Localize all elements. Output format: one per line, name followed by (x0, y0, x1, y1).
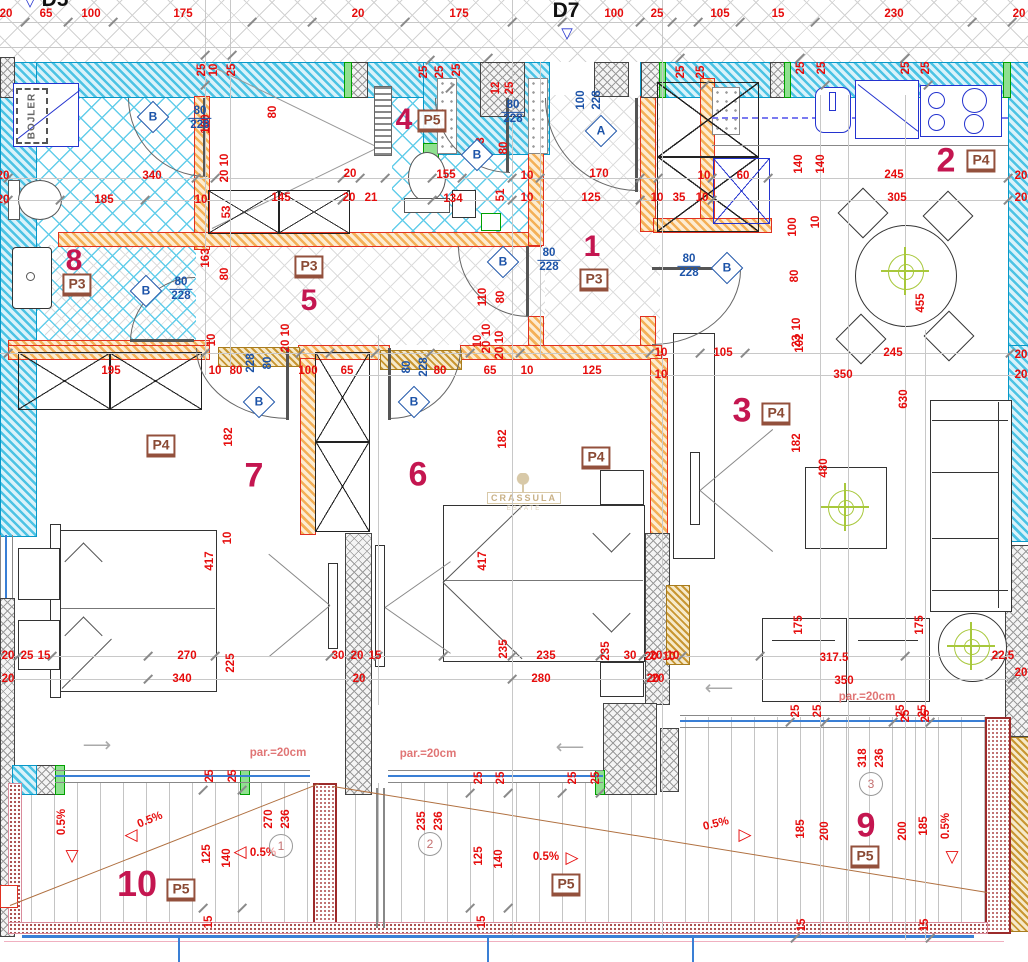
dim-chain-h-4 (0, 353, 1012, 354)
dim-label-25: 25 (227, 770, 239, 783)
dim-label-25: 25 (790, 705, 802, 718)
dim-label-140: 140 (221, 848, 233, 867)
dim-label-10: 10 (219, 154, 231, 167)
dim-label-340: 340 (172, 673, 191, 685)
dim-label-175: 175 (914, 615, 926, 634)
dim-label-350: 350 (833, 369, 852, 381)
door-tag-B-4: B (711, 252, 744, 285)
dim-label-235: 235 (416, 811, 428, 830)
door-size-2: 80228 (537, 247, 560, 273)
dim-label-20: 20 (0, 194, 9, 206)
door-letter: B (717, 258, 738, 279)
door-width: 80 (169, 276, 192, 289)
dim-label-185: 185 (795, 819, 807, 838)
dim-label-25: 25 (567, 772, 579, 785)
dim-label-80: 80 (219, 268, 231, 281)
dim-label-25: 25 (816, 62, 828, 75)
dim-label-10: 10 (655, 347, 668, 359)
dim-label-225: 225 (225, 653, 237, 672)
dim-label-100: 100 (298, 365, 317, 377)
door-size-3: 80228 (677, 253, 700, 279)
dim-label-175: 175 (793, 615, 805, 634)
dim-label-134: 134 (443, 193, 462, 205)
dim-label-235: 235 (536, 650, 555, 662)
dim-label-25: 25 (226, 64, 238, 77)
dim-label-125: 125 (201, 844, 213, 863)
dim-label-53: 53 (221, 206, 233, 219)
dim-label-245: 245 (884, 169, 903, 181)
dim-chain-v-6 (925, 330, 926, 940)
dim-label-163: 163 (200, 248, 212, 267)
dim-label-10: 10 (206, 334, 218, 347)
dim-label-10: 10 (651, 192, 664, 204)
door-letter: B (136, 281, 157, 302)
finish-tag-3: P4 (761, 403, 790, 426)
door-tag-A-0: A (585, 115, 618, 148)
dim-label-10: 10 (696, 192, 709, 204)
dim-label-par.=20cm: par.=20cm (250, 747, 307, 759)
dim-label-105: 105 (713, 347, 732, 359)
dim-label-417: 417 (204, 551, 216, 570)
annotation-layer: 2065100175201751002510515230202510252525… (0, 0, 1028, 962)
room-number-3: 3 (733, 392, 752, 431)
finish-tag-4: P5 (417, 110, 446, 133)
ceiling-light-cross (904, 247, 906, 295)
dim-label-455: 455 (915, 293, 927, 312)
dim-label-245: 245 (883, 347, 902, 359)
finish-tag-terrace: P5 (551, 874, 580, 897)
room-number-5: 5 (301, 284, 318, 318)
dim-tick (465, 788, 475, 798)
dim-label-20: 20 (2, 650, 15, 662)
dim-label-175: 175 (449, 8, 468, 20)
dim-label-125: 125 (582, 365, 601, 377)
dim-label-25: 25 (21, 650, 34, 662)
door-width: 80 (501, 99, 524, 112)
dim-label-0.5%: 0.5% (136, 810, 165, 831)
door-letter: B (404, 392, 425, 413)
dim-tick (888, 717, 898, 727)
finish-tag-7: P4 (146, 435, 175, 458)
dim-label-65: 65 (484, 365, 497, 377)
direction-arrow-0: ⟶ (83, 733, 112, 758)
dim-label-270: 270 (263, 809, 275, 828)
dim-chain-v-0 (512, 0, 513, 935)
dim-label-20: 20 (353, 673, 366, 685)
direction-arrow-2: ⟵ (705, 676, 734, 701)
dim-label-22.5: 22.5 (992, 650, 1014, 662)
dim-label-125: 125 (581, 192, 600, 204)
ceiling-light-cross (970, 622, 972, 670)
dim-label-25: 25 (920, 62, 932, 75)
dim-label-25: 25 (900, 62, 912, 75)
dim-label-25: 25 (917, 705, 929, 718)
dim-label-140: 140 (815, 154, 827, 173)
dim-label-par.=20cm: par.=20cm (400, 748, 457, 760)
dim-label-15: 15 (369, 650, 382, 662)
dim-label-80: 80 (789, 270, 801, 283)
dim-label-155: 155 (436, 169, 455, 181)
dim-label-0.5%: 0.5% (940, 813, 952, 839)
finish-tag-2: P4 (966, 150, 995, 173)
dim-label-182: 182 (497, 429, 509, 448)
dim-label-25: 25 (795, 62, 807, 75)
dim-label-10: 10 (521, 170, 534, 182)
dim-label-65: 65 (40, 8, 53, 20)
slope-arrow-1: ◁ (124, 825, 137, 845)
floor-plan-canvas: BOJLER (0, 0, 1028, 962)
dim-label-80: 80 (434, 365, 447, 377)
dim-label-20: 20 (1015, 667, 1028, 679)
terrace-ref-3: 3 (859, 772, 883, 796)
dim-label-228: 228 (418, 357, 430, 376)
slope-arrow-2: ◁ (233, 842, 246, 862)
dim-label-110: 110 (477, 288, 489, 307)
dim-tick (237, 785, 247, 795)
dim-label-10: 10 (195, 194, 208, 206)
dim-label-182: 182 (223, 427, 235, 446)
dim-chain-v-1 (540, 62, 541, 358)
dim-label-200: 200 (819, 821, 831, 840)
dim-label-15: 15 (772, 8, 785, 20)
dim-label-10: 10 (208, 64, 220, 77)
dim-label-195: 195 (101, 365, 120, 377)
dim-label-25: 25 (504, 82, 516, 95)
dim-label-25: 25 (451, 64, 463, 77)
dim-label-480: 480 (818, 458, 830, 477)
dim-label-140: 140 (793, 154, 805, 173)
room-number-9: 9 (857, 807, 876, 846)
dim-label-20: 20 (1015, 192, 1028, 204)
dim-label-20: 20 (219, 170, 231, 183)
dim-label-350: 350 (834, 675, 853, 687)
dim-label-25: 25 (651, 8, 664, 20)
dim-label-20: 20 (352, 8, 365, 20)
room-number-4: 4 (396, 103, 413, 137)
dim-label-230: 230 (884, 8, 903, 20)
door-letter: B (143, 107, 164, 128)
dim-label-15: 15 (919, 919, 931, 932)
dim-label-20: 20 (344, 168, 357, 180)
dim-label-170: 170 (589, 168, 608, 180)
dim-label-100: 100 (81, 8, 100, 20)
dim-label-10: 10 (521, 365, 534, 377)
dim-label-12: 12 (490, 82, 502, 95)
dim-label-235: 235 (600, 641, 612, 660)
dim-label-228: 228 (591, 90, 603, 109)
finish-tag-8: P3 (62, 274, 91, 297)
dim-label-21: 21 (365, 192, 378, 204)
dim-label-20: 20 (2, 673, 15, 685)
dim-chain-v-7 (205, 0, 206, 375)
dim-label-20: 20 (494, 347, 506, 360)
dim-tick (675, 53, 685, 63)
door-width: 80 (537, 247, 560, 260)
dim-label-25: 25 (418, 66, 430, 79)
dim-label-182: 182 (791, 433, 803, 452)
dim-label-25: 25 (590, 772, 602, 785)
dim-label-35: 35 (673, 192, 686, 204)
dim-chain-h-0 (0, 22, 1028, 23)
dim-chain-v-5 (905, 95, 906, 940)
dim-label-100: 100 (575, 90, 587, 109)
dim-tick (445, 83, 455, 93)
dim-label-20: 20 (0, 170, 9, 182)
dim-label-25: 25 (434, 66, 446, 79)
dim-label-80: 80 (498, 142, 510, 155)
dim-label-318: 318 (857, 748, 869, 767)
dim-label-317.5: 317.5 (820, 652, 849, 664)
dim-label-80: 80 (267, 106, 279, 119)
door-tag-B-7: B (398, 386, 431, 419)
dim-label-0.5%: 0.5% (56, 809, 68, 835)
dim-tick (198, 903, 208, 913)
dim-label-10: 10 (655, 369, 668, 381)
terrace-ref-1: 1 (269, 834, 293, 858)
dim-tick (925, 933, 935, 943)
dim-label-80: 80 (262, 357, 274, 370)
dim-label-10: 10 (667, 650, 680, 662)
door-letter: B (249, 392, 270, 413)
dim-label-30: 30 (332, 650, 345, 662)
door-size-1: 80228 (501, 99, 524, 125)
dim-label-235: 235 (498, 639, 510, 658)
dim-label-60: 60 (737, 170, 750, 182)
room-number-6: 6 (409, 456, 428, 495)
dim-label-228: 228 (245, 353, 257, 372)
dim-label-10: 10 (791, 318, 803, 331)
door-size-0: 80228 (188, 105, 211, 131)
dim-label-51: 51 (495, 189, 507, 202)
ceiling-light-icon (898, 264, 914, 280)
dim-tick (227, 50, 237, 60)
dim-label-15: 15 (38, 650, 51, 662)
dim-label-15: 15 (796, 919, 808, 932)
dim-label-80: 80 (401, 361, 413, 374)
finish-tag-10: P5 (166, 879, 195, 902)
ceiling-light-cross (844, 483, 846, 531)
dim-label-15: 15 (203, 916, 215, 929)
door-letter: A (591, 121, 612, 142)
dim-tick (820, 80, 830, 90)
dim-label-80: 80 (495, 291, 507, 304)
dim-label-10: 10 (521, 192, 534, 204)
dim-tick (923, 80, 933, 90)
dim-tick (820, 717, 830, 727)
dim-label-10: 10 (472, 335, 484, 348)
terrace-ref-2: 2 (418, 832, 442, 856)
finish-tag-6: P4 (581, 447, 610, 470)
slope-arrow-4: ▷ (738, 825, 751, 845)
dim-label-25: 25 (675, 66, 687, 79)
door-height: 228 (501, 112, 524, 126)
dim-tick (483, 53, 493, 63)
door-letter: B (493, 252, 514, 273)
finish-tag-9: P5 (850, 846, 879, 869)
door-height: 228 (677, 266, 700, 280)
door-tag-B-5: B (130, 275, 163, 308)
dim-label-25: 25 (196, 64, 208, 77)
dim-label-80: 80 (230, 365, 243, 377)
dim-label-20: 20 (351, 650, 364, 662)
dim-label-20: 20 (1015, 170, 1028, 182)
dim-label-270: 270 (177, 650, 196, 662)
door-height: 228 (188, 118, 211, 132)
door-width: 80 (677, 253, 700, 266)
dim-label-20: 20 (1015, 369, 1028, 381)
dim-label-175: 175 (173, 8, 192, 20)
dim-label-20: 20 (0, 8, 12, 20)
dim-label-30: 30 (624, 650, 637, 662)
door-height: 228 (169, 289, 192, 303)
dim-label-236: 236 (280, 809, 292, 828)
dim-label-25: 25 (812, 705, 824, 718)
dim-label-236: 236 (874, 748, 886, 767)
dim-label-10: 10 (280, 324, 292, 337)
slope-arrow-5: ▽ (945, 847, 958, 867)
door-letter: B (467, 145, 488, 166)
dim-tick (700, 80, 710, 90)
dim-label-305: 305 (887, 192, 906, 204)
dim-tick (557, 788, 567, 798)
dim-label-25: 25 (204, 770, 216, 783)
door-tag-B-1: B (137, 101, 170, 134)
dim-label-20: 20 (280, 340, 292, 353)
dim-label-20: 20 (1015, 349, 1028, 361)
dim-label-10: 10 (810, 216, 822, 229)
dim-label-25: 25 (695, 66, 707, 79)
dim-label-20: 20 (650, 650, 663, 662)
room-number-2: 2 (937, 142, 956, 181)
dim-label-10: 10 (698, 170, 711, 182)
dim-label-20: 20 (343, 192, 356, 204)
ceiling-light-icon (838, 500, 854, 516)
dim-chain-h-1 (0, 47, 1028, 48)
dim-label-0.5%: 0.5% (533, 851, 559, 863)
dim-chain-v-2 (662, 0, 663, 935)
dim-label-25: 25 (473, 772, 485, 785)
dim-tick (785, 717, 795, 727)
finish-tag-1: P3 (579, 269, 608, 292)
dim-label-25: 25 (895, 705, 907, 718)
direction-arrow-1: ⟵ (556, 735, 585, 760)
dim-label-200: 200 (897, 821, 909, 840)
dim-label-236: 236 (433, 811, 445, 830)
door-tag-B-2: B (461, 139, 494, 172)
dim-label-0.5%: 0.5% (702, 815, 730, 833)
dim-tick (425, 55, 435, 65)
door-tag-B-3: B (487, 246, 520, 279)
dim-label-340: 340 (142, 170, 161, 182)
dim-label-100: 100 (604, 8, 623, 20)
door-tag-B-6: B (243, 386, 276, 419)
dim-label-185: 185 (918, 816, 930, 835)
dim-label-65: 65 (341, 365, 354, 377)
dim-label-20: 20 (1013, 8, 1026, 20)
dim-label-par.=20cm: par.=20cm (839, 691, 896, 703)
ceiling-light-icon (964, 639, 980, 655)
dim-tick (595, 788, 605, 798)
finish-tag-5: P3 (294, 256, 323, 279)
dim-label-105: 105 (710, 8, 729, 20)
dim-label-102: 102 (794, 333, 806, 352)
dim-tick (790, 933, 800, 943)
dim-tick (198, 785, 208, 795)
dim-label-145: 145 (271, 192, 290, 204)
door-width: 80 (188, 105, 211, 118)
room-number-10: 10 (117, 863, 157, 905)
dim-label-15: 15 (476, 916, 488, 929)
dim-label-125: 125 (473, 846, 485, 865)
dim-label-10: 10 (494, 331, 506, 344)
dim-label-280: 280 (531, 673, 550, 685)
dim-label-10: 10 (209, 365, 222, 377)
dim-tick (237, 903, 247, 913)
dim-label-417: 417 (477, 551, 489, 570)
dim-tick (465, 903, 475, 913)
room-number-1: 1 (584, 230, 601, 264)
dim-label-20: 20 (652, 673, 665, 685)
door-size-4: 80228 (169, 276, 192, 302)
room-number-7: 7 (245, 457, 264, 496)
slope-arrow-3: ▷ (565, 848, 578, 868)
dim-label-100: 100 (787, 217, 799, 236)
dim-label-140: 140 (493, 849, 505, 868)
dim-label-185: 185 (94, 194, 113, 206)
dim-label-10: 10 (222, 532, 234, 545)
slope-arrow-0: ▽ (65, 846, 78, 866)
door-height: 228 (537, 260, 560, 274)
dim-label-630: 630 (898, 389, 910, 408)
dim-label-25: 25 (495, 772, 507, 785)
